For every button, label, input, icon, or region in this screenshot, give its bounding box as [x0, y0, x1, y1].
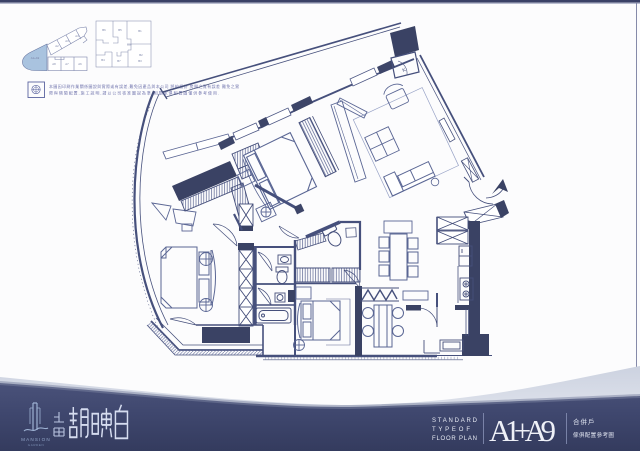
svg-text:A4: A4 [75, 34, 79, 38]
svg-text:T Y P E O F: T Y P E O F [432, 427, 470, 433]
svg-text:A8: A8 [52, 62, 56, 66]
svg-text:際與隔間配置,施工說明,請以公司核准圖說為準,相關家俱配置圖: 際與隔間配置,施工說明,請以公司核准圖說為準,相關家俱配置圖僅供參考使用. [49, 91, 219, 96]
svg-text:A7: A7 [65, 62, 69, 66]
svg-text:GARDEN: GARDEN [28, 443, 44, 447]
svg-text:傢俱配置參考圖: 傢俱配置參考圖 [573, 431, 614, 439]
svg-text:A2: A2 [55, 44, 59, 48]
svg-text:B1: B1 [138, 29, 142, 33]
svg-text:MANSION: MANSION [21, 437, 51, 442]
svg-text:A1+A9: A1+A9 [489, 413, 556, 448]
svg-text:B6: B6 [102, 28, 106, 32]
svg-text:A1+A9: A1+A9 [31, 56, 40, 60]
svg-text:B4: B4 [101, 58, 105, 62]
svg-text:STANDARD: STANDARD [432, 418, 478, 424]
svg-text:FLOOR PLAN: FLOOR PLAN [432, 436, 477, 442]
svg-text:B7: B7 [117, 59, 121, 63]
svg-text:A3: A3 [65, 39, 69, 43]
svg-text:B5: B5 [118, 28, 122, 32]
svg-text:B3: B3 [138, 59, 142, 63]
svg-text:本圖因印刷作業關係圖說與實際或有誤差,難免因產品與本公司 將: 本圖因印刷作業關係圖說與實際或有誤差,難免因產品與本公司 將較設計 房間之實有誤… [49, 84, 239, 89]
svg-text:合併戶: 合併戶 [573, 417, 596, 426]
svg-text:B2: B2 [139, 53, 143, 57]
svg-text:A6: A6 [78, 62, 82, 66]
